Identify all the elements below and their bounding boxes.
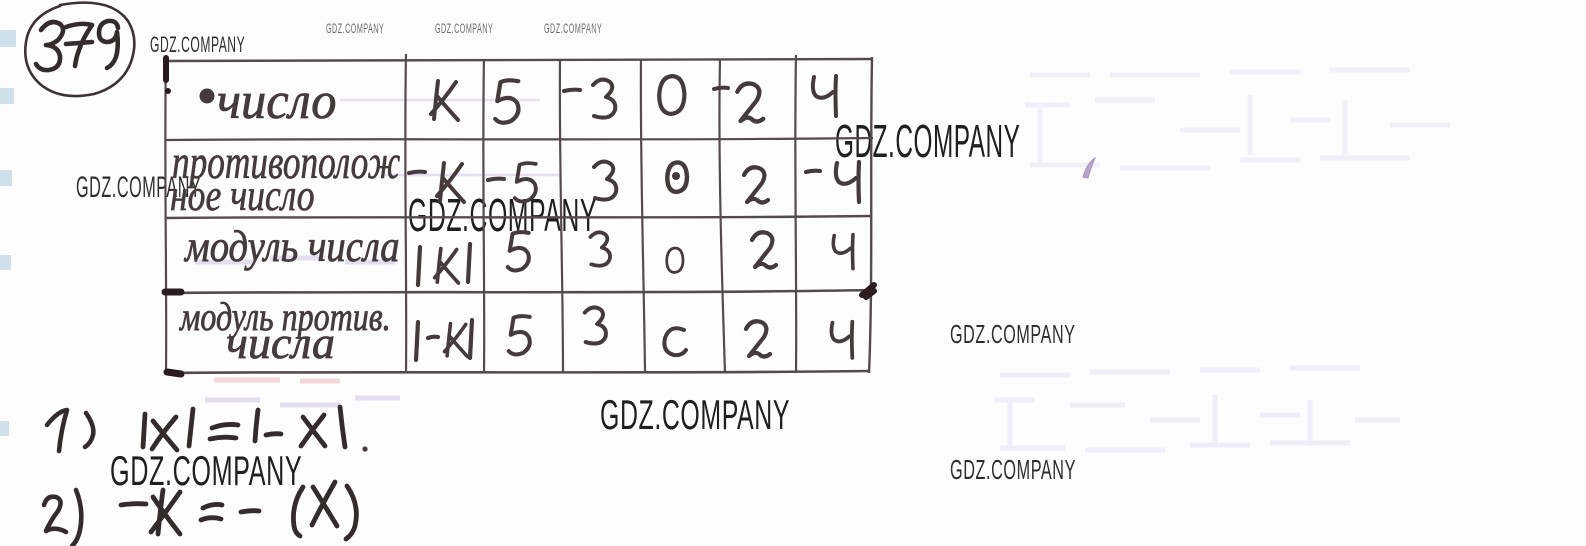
svg-text:GDZ.COMPANY: GDZ.COMPANY bbox=[150, 32, 245, 57]
svg-text:GDZ.COMPANY: GDZ.COMPANY bbox=[950, 453, 1076, 485]
svg-text:числа: числа bbox=[226, 317, 335, 368]
svg-text:GDZ.COMPANY: GDZ.COMPANY bbox=[835, 116, 1020, 167]
svg-text:GDZ.COMPANY: GDZ.COMPANY bbox=[326, 22, 384, 37]
svg-text:GDZ.COMPANY: GDZ.COMPANY bbox=[950, 319, 1076, 349]
svg-text:GDZ.COMPANY: GDZ.COMPANY bbox=[110, 449, 302, 495]
svg-text:GDZ.COMPANY: GDZ.COMPANY bbox=[600, 393, 790, 439]
svg-text:GDZ.COMPANY: GDZ.COMPANY bbox=[435, 22, 493, 37]
svg-text:GDZ.COMPANY: GDZ.COMPANY bbox=[544, 22, 602, 37]
svg-text:число: число bbox=[217, 72, 336, 130]
svg-text:ное число: ное число bbox=[170, 170, 315, 219]
svg-text:модуль числа: модуль числа bbox=[183, 222, 400, 271]
